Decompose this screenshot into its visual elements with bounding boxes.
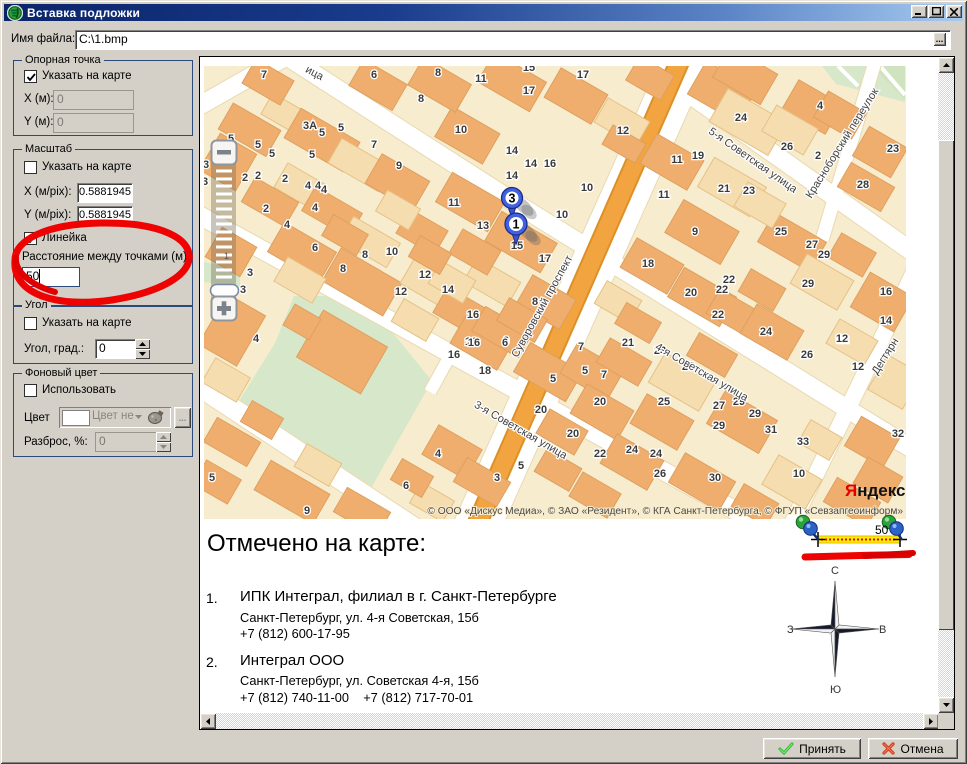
svg-text:4: 4	[305, 180, 312, 192]
svg-text:5: 5	[309, 149, 315, 161]
svg-text:4: 4	[312, 202, 319, 214]
svg-text:13: 13	[477, 220, 489, 232]
svg-text:20: 20	[567, 428, 579, 440]
svg-text:16: 16	[880, 286, 892, 298]
svg-text:50: 50	[875, 523, 889, 537]
svg-text:4: 4	[817, 100, 824, 112]
svg-text:24: 24	[760, 326, 773, 338]
svg-text:31: 31	[765, 424, 777, 436]
svg-text:22: 22	[594, 448, 606, 460]
svg-text:30: 30	[709, 472, 721, 484]
svg-text:28: 28	[857, 179, 869, 191]
svg-text:С: С	[831, 565, 839, 577]
svg-text:2: 2	[242, 172, 248, 184]
svg-text:2: 2	[255, 170, 261, 182]
svg-text:6: 6	[502, 337, 508, 349]
svg-text:5: 5	[255, 139, 261, 151]
svg-text:10: 10	[793, 468, 805, 480]
svg-text:Яндекс: Яндекс	[845, 481, 905, 500]
svg-text:29: 29	[713, 420, 725, 432]
svg-text:10: 10	[556, 209, 568, 221]
svg-text:7: 7	[261, 69, 267, 81]
svg-text:11: 11	[475, 73, 487, 85]
svg-text:21: 21	[622, 337, 634, 349]
svg-text:26: 26	[654, 468, 666, 480]
svg-text:4: 4	[284, 219, 291, 231]
svg-text:10: 10	[455, 124, 467, 136]
svg-text:6: 6	[312, 242, 318, 254]
svg-text:26: 26	[801, 349, 813, 361]
svg-text:14: 14	[646, 66, 659, 67]
svg-text:26: 26	[781, 141, 793, 153]
svg-text:3: 3	[509, 192, 516, 206]
svg-text:27: 27	[713, 400, 725, 412]
svg-text:16: 16	[544, 158, 556, 170]
svg-text:29: 29	[818, 249, 830, 261]
svg-text:29: 29	[802, 278, 814, 290]
svg-text:В: В	[879, 624, 886, 636]
svg-text:4: 4	[321, 184, 328, 196]
svg-text:11: 11	[671, 154, 683, 166]
svg-text:20: 20	[594, 396, 606, 408]
svg-text:19: 19	[692, 150, 704, 162]
svg-text:14: 14	[880, 315, 893, 327]
svg-text:33: 33	[797, 436, 809, 448]
svg-text:7: 7	[601, 369, 607, 381]
svg-text:24: 24	[626, 444, 639, 456]
svg-text:Ю: Ю	[830, 684, 841, 696]
svg-text:12: 12	[419, 269, 431, 281]
svg-text:3: 3	[240, 284, 246, 296]
svg-text:25: 25	[775, 226, 787, 238]
svg-text:17: 17	[523, 85, 535, 97]
svg-text:32: 32	[892, 428, 904, 440]
svg-text:18: 18	[479, 365, 491, 377]
svg-text:23: 23	[887, 143, 899, 155]
svg-text:17: 17	[577, 69, 589, 81]
svg-text:16: 16	[448, 349, 460, 361]
svg-text:3: 3	[494, 472, 500, 484]
svg-text:17: 17	[539, 253, 551, 265]
svg-text:З: З	[787, 624, 794, 636]
svg-text:16: 16	[467, 309, 479, 321]
svg-text:6: 6	[403, 480, 409, 492]
svg-text:14: 14	[506, 145, 519, 157]
svg-text:27: 27	[806, 239, 818, 251]
svg-text:7: 7	[578, 341, 584, 353]
svg-text:20: 20	[535, 404, 547, 416]
svg-text:5: 5	[319, 127, 325, 139]
svg-text:25: 25	[658, 396, 670, 408]
svg-text:5: 5	[269, 148, 275, 160]
svg-text:2: 2	[282, 173, 288, 185]
svg-text:22: 22	[712, 309, 724, 321]
svg-text:10: 10	[581, 182, 593, 194]
svg-text:5: 5	[209, 472, 215, 484]
svg-text:14: 14	[442, 284, 455, 296]
svg-text:2: 2	[815, 150, 821, 162]
svg-text:12: 12	[836, 333, 848, 345]
svg-text:12: 12	[395, 286, 407, 298]
svg-text:5: 5	[338, 122, 344, 134]
svg-text:3: 3	[247, 267, 253, 279]
svg-text:21: 21	[718, 183, 730, 195]
svg-text:9: 9	[692, 226, 698, 238]
svg-text:7: 7	[371, 139, 377, 151]
svg-text:12: 12	[852, 361, 864, 373]
svg-text:29: 29	[749, 408, 761, 420]
svg-text:6: 6	[371, 69, 377, 81]
svg-text:18: 18	[642, 258, 654, 270]
svg-text:9: 9	[304, 505, 310, 517]
svg-text:15: 15	[523, 66, 535, 74]
svg-text:5: 5	[518, 460, 524, 472]
svg-text:4: 4	[253, 333, 260, 345]
svg-text:14: 14	[506, 170, 519, 182]
svg-text:8: 8	[435, 67, 441, 79]
svg-text:10: 10	[386, 246, 398, 258]
svg-text:20: 20	[685, 287, 697, 299]
svg-text:9: 9	[396, 160, 402, 172]
svg-text:8: 8	[362, 249, 368, 261]
svg-text:3: 3	[204, 159, 209, 171]
svg-text:4: 4	[435, 448, 442, 460]
svg-text:12: 12	[617, 125, 629, 137]
svg-text:23: 23	[743, 185, 755, 197]
svg-text:3: 3	[204, 176, 208, 188]
svg-text:11: 11	[658, 189, 670, 201]
svg-text:22: 22	[716, 284, 728, 296]
svg-text:11: 11	[448, 197, 460, 209]
svg-text:3А: 3А	[303, 120, 317, 132]
svg-text:5: 5	[582, 365, 588, 377]
svg-text:24: 24	[735, 112, 748, 124]
svg-text:5: 5	[550, 373, 556, 385]
svg-text:8: 8	[418, 93, 424, 105]
svg-text:1: 1	[224, 251, 229, 261]
svg-text:8: 8	[340, 263, 346, 275]
svg-text:24: 24	[650, 448, 663, 460]
svg-text:2: 2	[263, 203, 269, 215]
svg-text:14: 14	[525, 158, 538, 170]
svg-text:1: 1	[513, 218, 520, 232]
svg-text:16: 16	[468, 337, 480, 349]
